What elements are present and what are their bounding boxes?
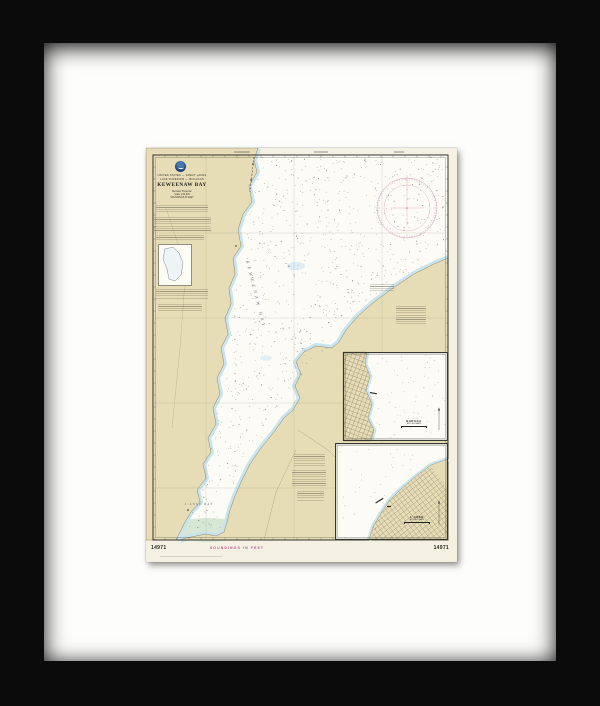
margin-tick-label [234,151,250,153]
margin-tick-label [394,151,404,153]
inset-baraga-label: BARAGA MICHIGAN [386,419,442,428]
chart-note-text [294,454,325,466]
margin-tick-label [314,151,328,153]
locator-lake-outline [159,245,191,285]
margin-microtext [160,556,222,558]
chart-subtitle-3: SOUNDINGS IN FEET [148,197,216,200]
framed-chart-photo: UNITED STATES — GREAT LAKES LAKE SUPERIO… [0,0,600,706]
chart-number-right: 14971 [418,546,449,552]
chart-note-text [156,235,204,240]
noaa-logo-icon [175,161,186,172]
chart-note-text [370,284,394,292]
chart-note-text [396,306,426,325]
chart-note-text [156,205,208,213]
inset-scale-bar [401,426,427,428]
chart-note-text [156,289,208,300]
chart-note-text [158,304,202,312]
nautical-chart: UNITED STATES — GREAT LAKES LAKE SUPERIO… [146,148,457,562]
chart-note-text [154,217,211,231]
chart-note-text [292,470,326,486]
chart-number-left: 14971 [151,546,166,552]
chart-note-text [297,491,324,501]
lanse-bay-label: L'ANSE BAY [176,503,222,506]
inset-lanse-state: MICHIGAN [389,519,445,521]
inset-lanse-label: L'ANSE MICHIGAN [389,515,445,524]
chart-title: KEWEENAW BAY [148,183,216,189]
inset-scale-bar [404,522,430,524]
soundings-units-label: SOUNDINGS IN FEET [182,546,292,550]
locator-inset-map [158,244,192,286]
inset-baraga-state: MICHIGAN [386,423,442,425]
